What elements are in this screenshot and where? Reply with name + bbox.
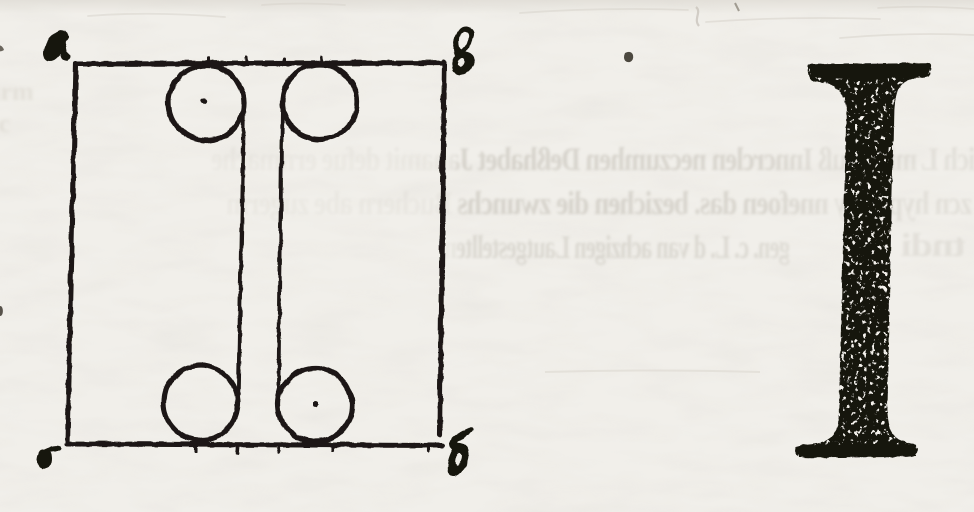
svg-text:gen. c. L. d van achzigen Laut: gen. c. L. d van achzigen Lautgestellten… [440,230,790,266]
svg-text:urm: urm [0,77,34,106]
svg-text:tndi: tndi [901,228,966,264]
svg-text:tc: tc [0,109,10,138]
